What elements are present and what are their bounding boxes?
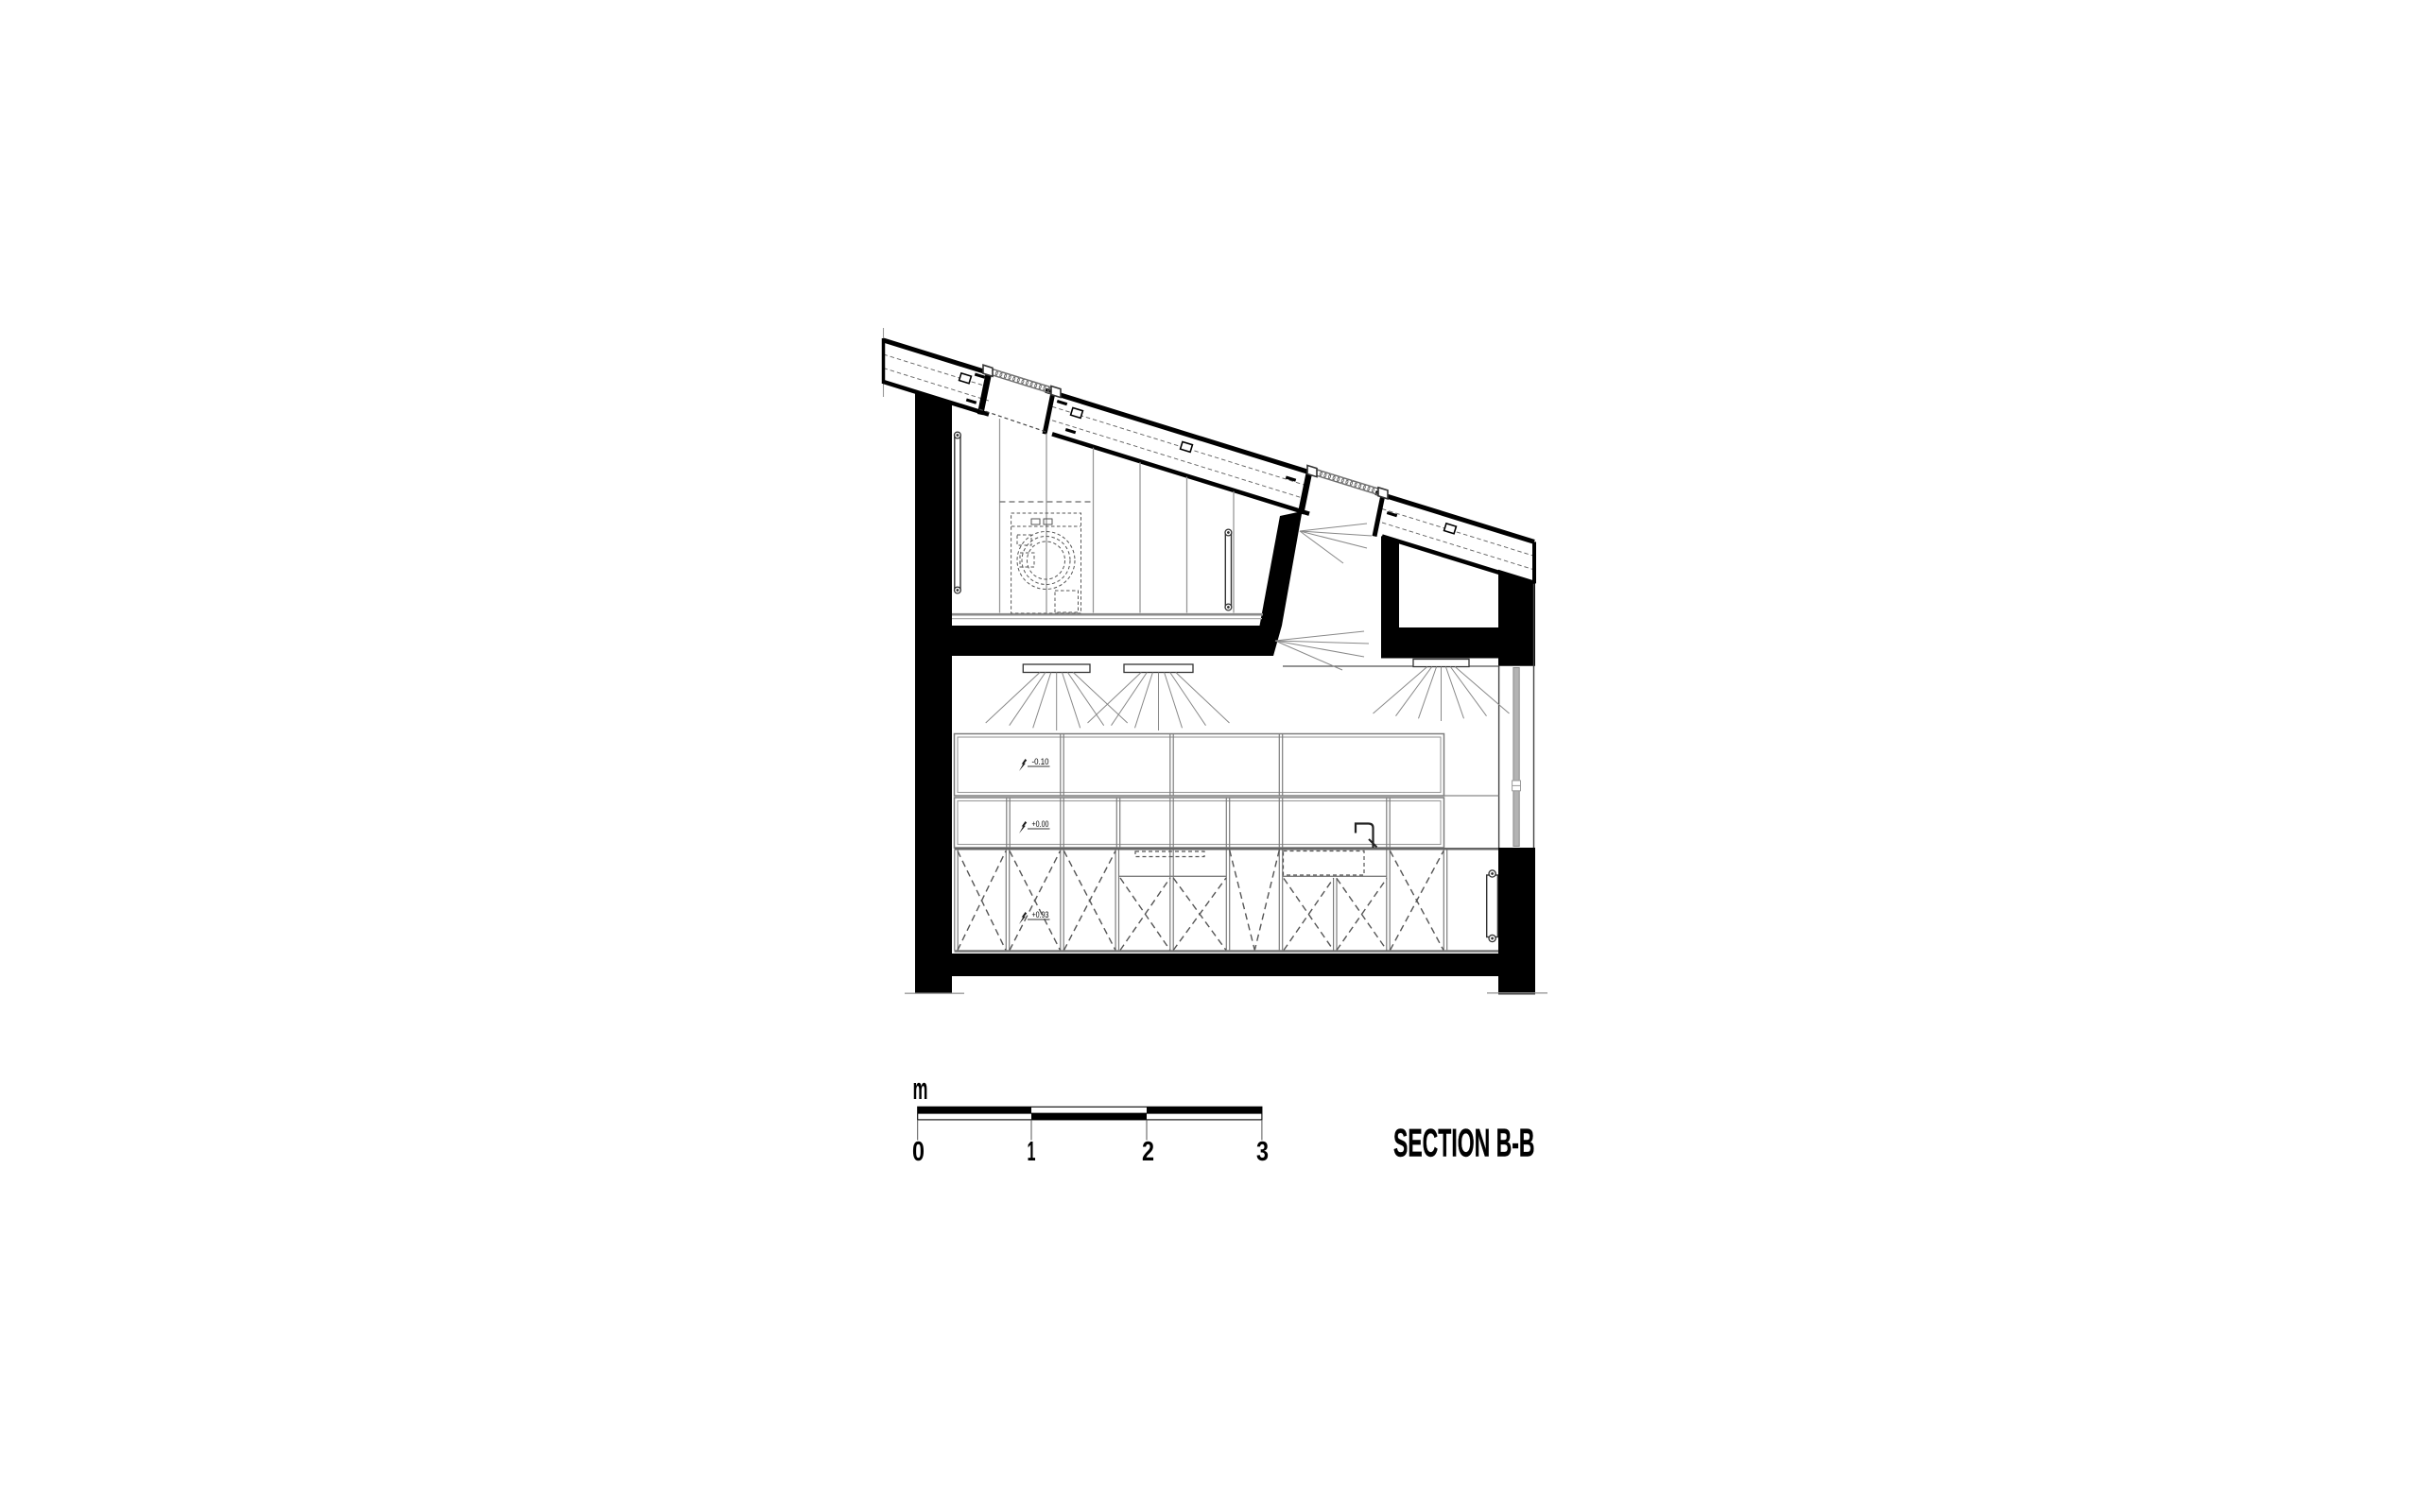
svg-text:+0.00: +0.00 (1032, 819, 1049, 830)
svg-text:SECTION B-B: SECTION B-B (1393, 1121, 1535, 1165)
svg-text:-0.10: -0.10 (1032, 757, 1049, 767)
svg-text:0: 0 (912, 1137, 925, 1167)
svg-text:+0.93: +0.93 (1032, 910, 1049, 920)
svg-text:1: 1 (1028, 1137, 1036, 1167)
svg-text:3: 3 (1256, 1137, 1269, 1167)
svg-text:2: 2 (1142, 1137, 1154, 1167)
svg-text:m: m (913, 1072, 928, 1106)
